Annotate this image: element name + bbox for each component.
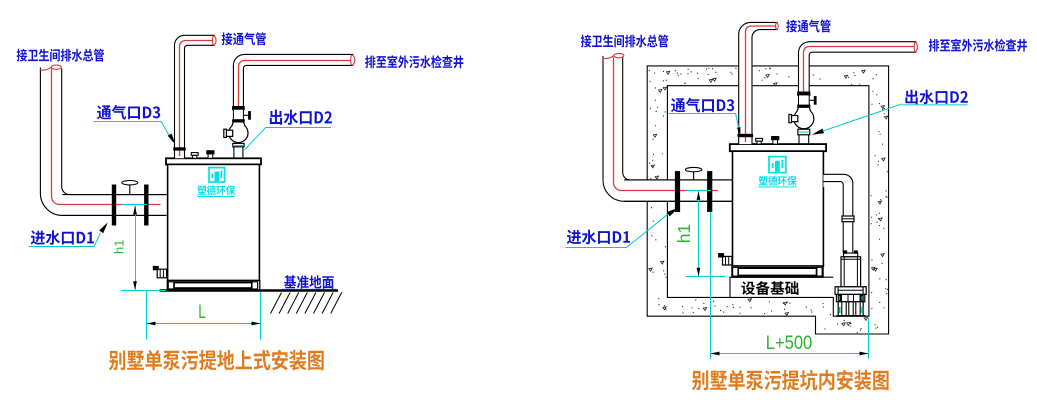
svg-text:L: L xyxy=(198,301,206,323)
svg-text:h1: h1 xyxy=(674,224,694,243)
svg-text:h1: h1 xyxy=(112,240,127,254)
svg-text:L+500: L+500 xyxy=(766,332,813,354)
